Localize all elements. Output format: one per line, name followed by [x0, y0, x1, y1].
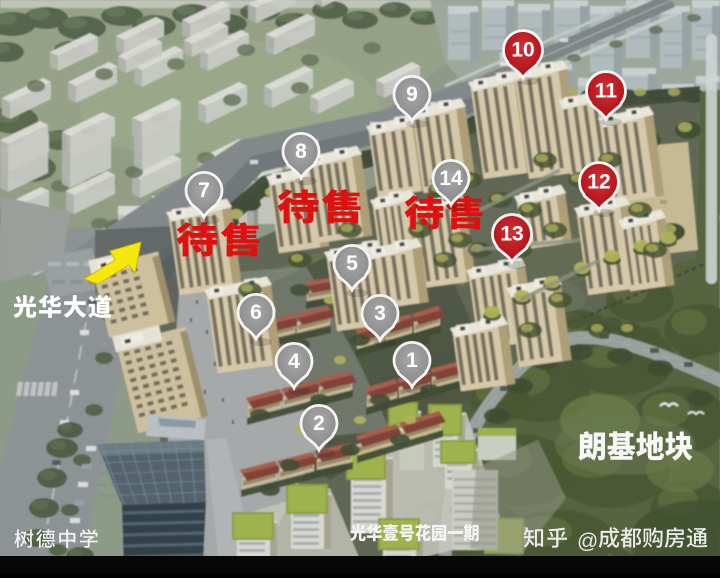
svg-text:@: @	[577, 530, 598, 553]
svg-text:2: 2	[313, 412, 325, 435]
svg-text:3: 3	[374, 302, 386, 325]
svg-text:13: 13	[500, 222, 523, 245]
svg-text:8: 8	[295, 140, 307, 163]
svg-text:11: 11	[595, 79, 618, 102]
svg-text:5: 5	[346, 252, 358, 275]
svg-text:1: 1	[406, 349, 418, 372]
svg-text:14: 14	[439, 167, 463, 190]
svg-text:4: 4	[288, 350, 300, 373]
svg-text:9: 9	[406, 83, 418, 106]
svg-text:12: 12	[587, 170, 610, 193]
svg-text:6: 6	[250, 301, 262, 324]
svg-text:10: 10	[511, 38, 534, 61]
svg-text:7: 7	[198, 179, 210, 202]
